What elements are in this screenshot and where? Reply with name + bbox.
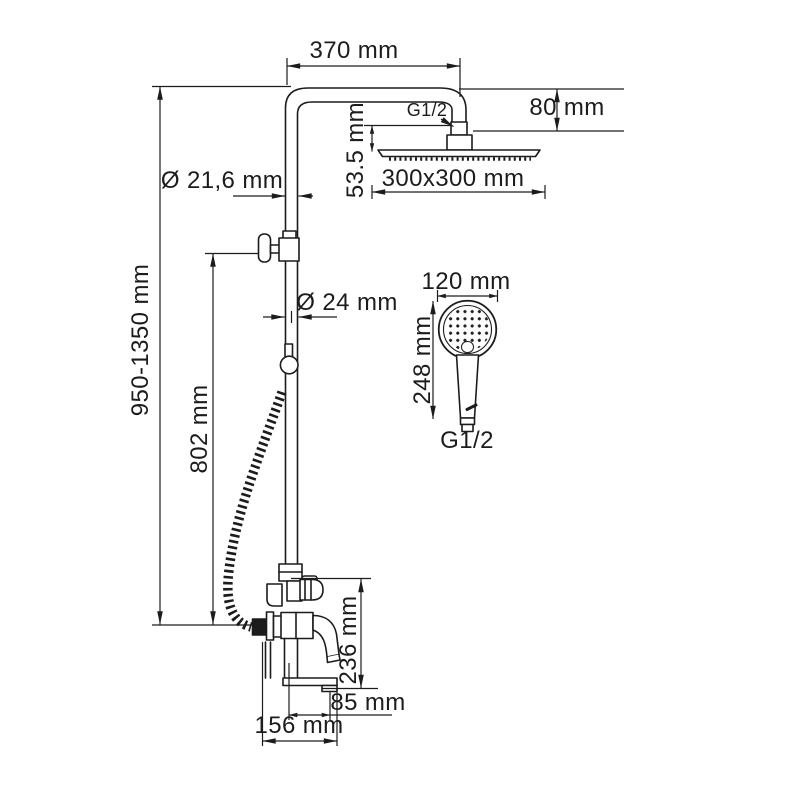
dim-label-head-drop: 80 mm (529, 96, 604, 120)
dim-label-arm-width: 370 mm (309, 39, 398, 63)
dim-label-slider-height: 802 mm (188, 384, 212, 473)
drawing-linework (0, 0, 800, 800)
technical-drawing: 370 mm 950-1350 mm 802 mm Ø 21,6 mm Ø 24… (0, 0, 800, 800)
dim-label-handshower-diameter: 120 mm (421, 270, 510, 294)
hand-shower-mode-button (461, 341, 474, 354)
hand-shower (439, 301, 497, 432)
rain-shower-head (378, 122, 540, 159)
diverter-knob (280, 344, 298, 374)
dim-label-head-size: 300x300 mm (382, 167, 525, 191)
dim-label-pipe-upper-diameter: Ø 21,6 mm (161, 169, 283, 193)
dim-label-head-connection: G1/2 (407, 101, 448, 119)
dim-head-offset-53-5 (364, 126, 451, 152)
dim-label-head-offset: 53.5 mm (344, 102, 368, 198)
dim-label-handshower-connection: G1/2 (440, 429, 494, 453)
dim-label-overall-height: 950-1350 mm (129, 264, 153, 416)
dim-label-mixer-width: 156 mm (254, 714, 343, 738)
dim-slider-height-802 (205, 254, 259, 625)
dim-label-handshower-length: 248 mm (411, 315, 435, 404)
mixer-assembly (253, 564, 341, 692)
wall-bracket-slider (259, 231, 300, 262)
dim-label-pipe-lower-diameter: Ø 24 mm (296, 291, 397, 315)
dim-label-spout-height: 236 mm (337, 595, 361, 684)
